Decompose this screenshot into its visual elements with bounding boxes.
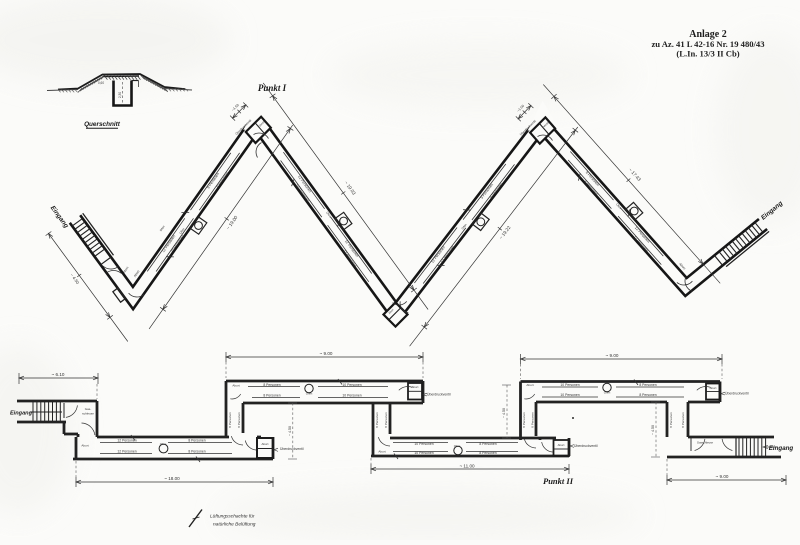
svg-text:8 Personen: 8 Personen — [531, 412, 535, 428]
svg-text:(L.In. 13/3 II Cb): (L.In. 13/3 II Cb) — [676, 49, 739, 59]
svg-text:~ 4.50: ~ 4.50 — [502, 408, 506, 418]
svg-text:Ofen: Ofen — [454, 444, 461, 448]
svg-text:~ 18.00: ~ 18.00 — [164, 476, 180, 481]
svg-text:Querschnitt: Querschnitt — [84, 121, 121, 128]
svg-text:10 Personen: 10 Personen — [560, 393, 579, 397]
svg-text:Eingang: Eingang — [10, 411, 33, 417]
svg-text:8 Personen: 8 Personen — [375, 412, 379, 428]
svg-text:8 Personen: 8 Personen — [263, 383, 280, 387]
svg-text:Eingang: Eingang — [769, 445, 794, 452]
svg-text:10 Personen: 10 Personen — [342, 394, 361, 398]
svg-text:~ 9.00: ~ 9.00 — [716, 474, 729, 479]
svg-text:8 Personen: 8 Personen — [228, 412, 232, 428]
svg-text:8 Personen: 8 Personen — [669, 412, 673, 428]
svg-text:10 Personen: 10 Personen — [560, 383, 579, 387]
svg-text:0,60: 0,60 — [98, 81, 104, 85]
svg-text:Ofen: Ofen — [306, 392, 313, 396]
svg-text:10 Personen: 10 Personen — [342, 383, 361, 387]
svg-text:12 Personen: 12 Personen — [117, 450, 136, 454]
svg-text:Abort: Abort — [81, 444, 88, 448]
svg-text:Lüftungsschachte für: Lüftungsschachte für — [210, 514, 255, 520]
svg-text:~ 6.10: ~ 6.10 — [52, 372, 65, 377]
svg-text:natürliche Belüftung: natürliche Belüftung — [213, 522, 256, 528]
svg-text:Abort: Abort — [526, 383, 533, 387]
svg-text:8 Personen: 8 Personen — [639, 393, 656, 397]
svg-text:8 Personen: 8 Personen — [479, 442, 496, 446]
svg-text:8 Personen: 8 Personen — [479, 451, 496, 455]
svg-text:schleuse: schleuse — [82, 412, 94, 416]
svg-text:8 Personen: 8 Personen — [639, 383, 656, 387]
svg-text:Überdruckventil: Überdruckventil — [280, 447, 304, 451]
svg-text:8 Personen: 8 Personen — [681, 412, 685, 428]
svg-text:8 Personen: 8 Personen — [263, 394, 280, 398]
svg-text:Abort: Abort — [262, 442, 269, 446]
svg-text:Abort: Abort — [232, 384, 239, 388]
svg-text:Ofen: Ofen — [160, 442, 167, 446]
svg-text:8 Personen: 8 Personen — [522, 412, 526, 428]
svg-text:Abort: Abort — [412, 385, 419, 389]
svg-text:Gas-: Gas- — [85, 407, 92, 411]
svg-text:Abort: Abort — [558, 443, 565, 447]
svg-text:10 Personen: 10 Personen — [414, 451, 433, 455]
svg-text:~ 11.00: ~ 11.00 — [459, 464, 475, 469]
svg-text:Punkt II: Punkt II — [543, 476, 574, 486]
svg-text:~ 9.00: ~ 9.00 — [320, 351, 333, 356]
svg-text:10 Personen: 10 Personen — [414, 442, 433, 446]
svg-text:8 Personen: 8 Personen — [237, 412, 241, 428]
svg-text:8 Personen: 8 Personen — [188, 439, 205, 443]
svg-text:Abort: Abort — [378, 450, 385, 454]
svg-text:2,30: 2,30 — [118, 92, 122, 98]
svg-text:8 Personen: 8 Personen — [384, 412, 388, 428]
svg-text:~ 9.00: ~ 9.00 — [606, 353, 619, 358]
svg-text:Gasschleuse: Gasschleuse — [697, 441, 714, 445]
svg-text:zu Az. 41 L 42-16 Nr. 19 480/4: zu Az. 41 L 42-16 Nr. 19 480/43 — [651, 39, 764, 49]
svg-text:Überdruckventil: Überdruckventil — [725, 392, 749, 396]
svg-text:Überdruckventil: Überdruckventil — [427, 393, 451, 397]
svg-text:Ofen: Ofen — [604, 391, 611, 395]
svg-text:Punkt I: Punkt I — [258, 83, 287, 93]
svg-text:Überdruckventil: Überdruckventil — [574, 444, 598, 448]
svg-text:~ 4.50: ~ 4.50 — [651, 425, 655, 435]
svg-text:Abort: Abort — [710, 386, 717, 390]
svg-text:8 Personen: 8 Personen — [188, 450, 205, 454]
svg-text:~ 4.50: ~ 4.50 — [288, 426, 292, 436]
